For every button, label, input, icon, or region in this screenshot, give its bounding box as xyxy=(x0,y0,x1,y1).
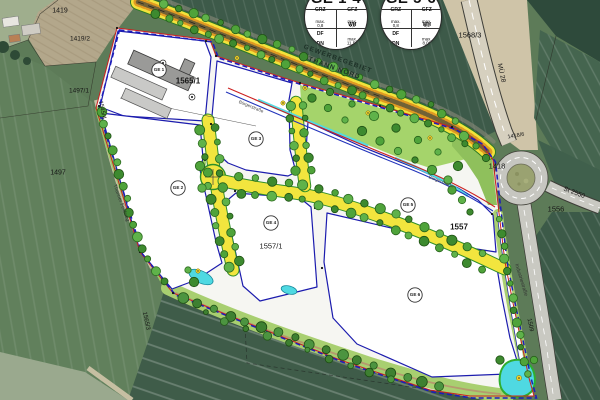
grz-label: GRZ xyxy=(388,7,403,12)
wh-value: max. 8,00 m xyxy=(420,37,433,49)
plan-canvas xyxy=(0,0,600,400)
grz-value: max. 0,8 xyxy=(389,20,402,28)
gfz-label: GFZ xyxy=(419,7,434,12)
roof-form-1: DF xyxy=(388,31,403,36)
roof-form-2: DN xyxy=(313,41,328,46)
zoning-stamp-ge-1-4: GE 1-4 GRZ max. 0,8 GFZ max. 1,8 DF DN W… xyxy=(304,0,368,50)
gfz-label: GFZ xyxy=(344,7,359,12)
zoning-stamp-ge-5-6: GE 5-6 GRZ max. 0,8 GFZ max. 1,2 DF DN W… xyxy=(380,0,442,50)
grz-value: max. 0,8 xyxy=(314,20,327,28)
wh-label: WH xyxy=(344,22,359,27)
roof-form-2: DN xyxy=(388,41,403,46)
wh-value: max. 11,50 m xyxy=(345,37,358,49)
wh-label: WH xyxy=(419,22,434,27)
roundabout xyxy=(494,151,548,205)
site-plan-map[interactable]: GEWERBEGEBIET THANN NORD 1419 1419/2 149… xyxy=(0,0,600,400)
grz-label: GRZ xyxy=(313,7,328,12)
roof-form-1: DF xyxy=(313,31,328,36)
